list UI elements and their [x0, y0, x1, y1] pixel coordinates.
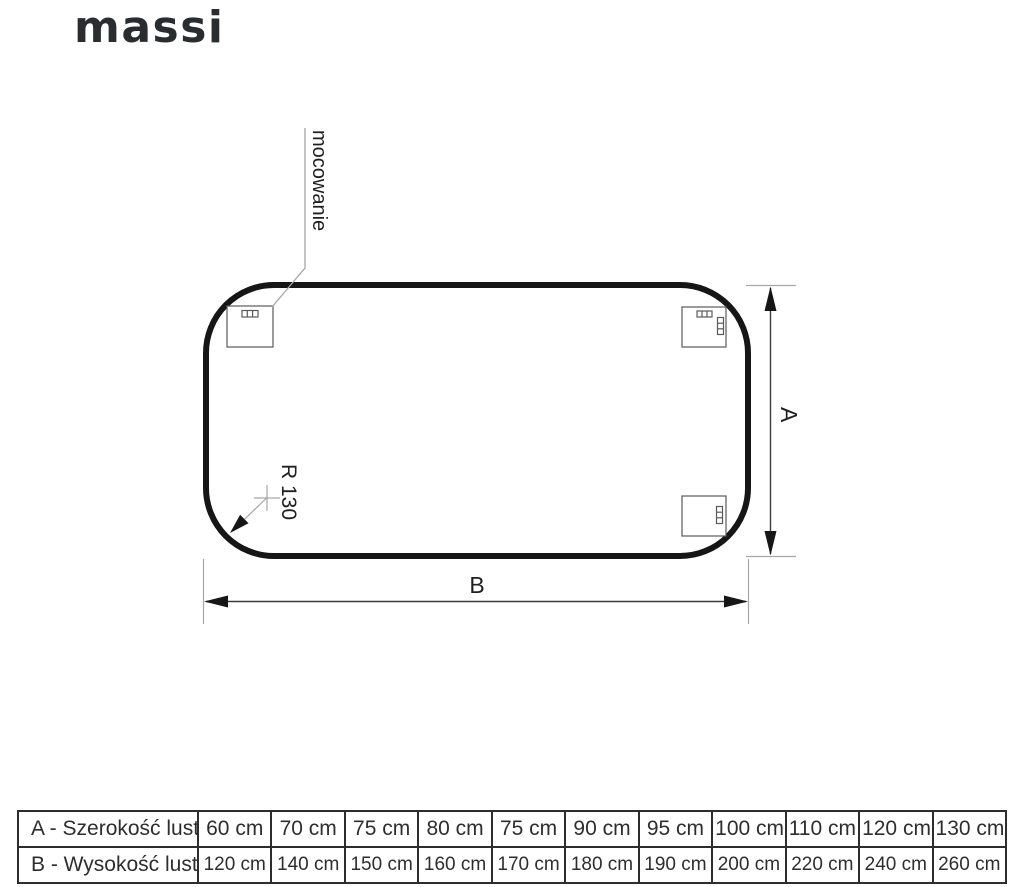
height-value: 180 cm	[565, 847, 638, 883]
height-value: 190 cm	[639, 847, 712, 883]
dimension-B-label: B	[469, 572, 484, 598]
mount-bracket-top-left	[227, 306, 273, 347]
height-value: 140 cm	[271, 847, 344, 883]
width-value: 70 cm	[271, 811, 344, 847]
dimension-A: A	[746, 286, 802, 557]
row-header-width: A - Szerokość lustra	[18, 811, 198, 847]
mount-label: mocowanie	[308, 130, 330, 231]
mount-bracket-bottom-right	[682, 496, 726, 536]
width-value: 110 cm	[786, 811, 859, 847]
height-value: 160 cm	[418, 847, 491, 883]
height-value: 220 cm	[786, 847, 859, 883]
width-value: 90 cm	[565, 811, 638, 847]
radius-label: R 130	[277, 464, 300, 520]
mirror-dimension-diagram: mocowanie A B R 130	[0, 0, 1020, 800]
row-header-height: B - Wysokość lustra	[18, 847, 198, 883]
width-value: 120 cm	[859, 811, 932, 847]
height-value: 200 cm	[712, 847, 785, 883]
arrowhead-down	[765, 531, 777, 556]
table-row-width: A - Szerokość lustra 60 cm 70 cm 75 cm 8…	[18, 811, 1006, 847]
table-row-height: B - Wysokość lustra 120 cm 140 cm 150 cm…	[18, 847, 1006, 883]
width-value: 60 cm	[198, 811, 271, 847]
arrowhead-left	[204, 596, 228, 608]
dimension-A-label: A	[776, 407, 802, 423]
height-value: 120 cm	[198, 847, 271, 883]
mount-leader-line	[272, 128, 305, 307]
width-value: 100 cm	[712, 811, 785, 847]
mount-bracket-top-right	[682, 307, 726, 347]
width-value: 80 cm	[418, 811, 491, 847]
width-value: 75 cm	[492, 811, 565, 847]
arrowhead-right	[724, 596, 748, 608]
width-value: 130 cm	[933, 811, 1006, 847]
arrowhead-up	[765, 287, 777, 312]
height-value: 240 cm	[859, 847, 932, 883]
width-value: 75 cm	[345, 811, 418, 847]
height-value: 260 cm	[933, 847, 1006, 883]
width-value: 95 cm	[639, 811, 712, 847]
size-table: A - Szerokość lustra 60 cm 70 cm 75 cm 8…	[17, 810, 1007, 884]
height-value: 170 cm	[492, 847, 565, 883]
dimension-B: B	[204, 559, 749, 624]
height-value: 150 cm	[345, 847, 418, 883]
